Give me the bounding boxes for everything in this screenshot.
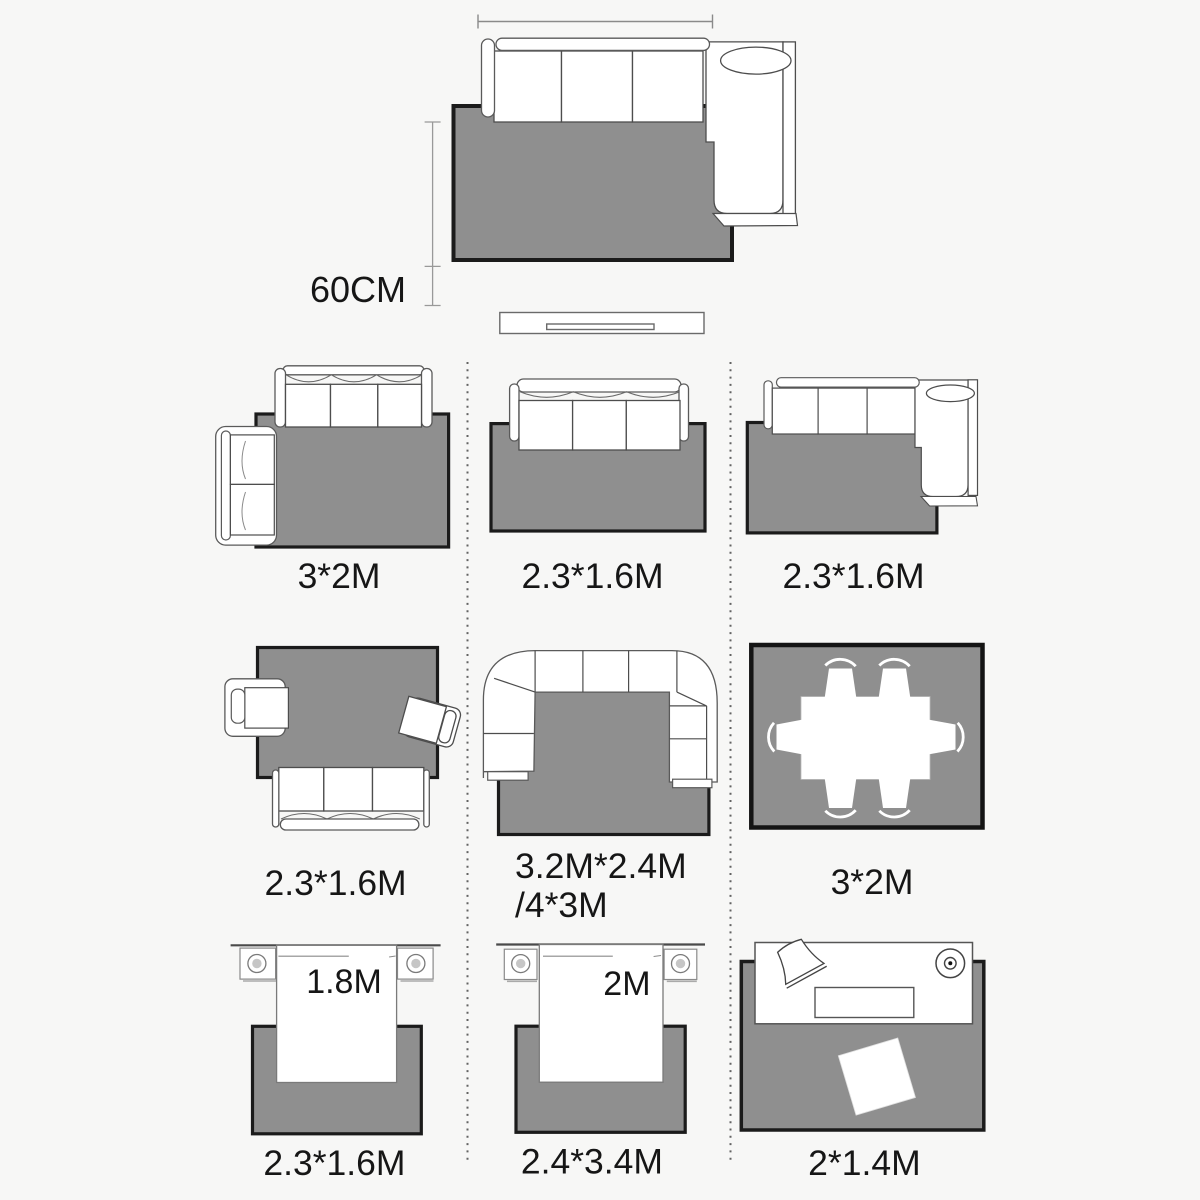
svg-text:2.4*3.4M: 2.4*3.4M — [521, 1142, 663, 1182]
svg-text:3*2M: 3*2M — [298, 556, 381, 596]
svg-text:60CM: 60CM — [310, 269, 406, 310]
svg-text:3.2M*2.4M: 3.2M*2.4M — [515, 846, 687, 886]
svg-text:2.3*1.6M: 2.3*1.6M — [265, 863, 407, 903]
svg-text:3*2M: 3*2M — [831, 862, 914, 902]
svg-text:2.3*1.6M: 2.3*1.6M — [782, 556, 924, 596]
svg-text:/4*3M: /4*3M — [515, 885, 608, 925]
svg-text:1.8M: 1.8M — [306, 963, 382, 1001]
svg-text:2M: 2M — [603, 965, 650, 1003]
svg-text:2*1.4M: 2*1.4M — [808, 1143, 920, 1183]
svg-text:2.3*1.6M: 2.3*1.6M — [263, 1143, 405, 1183]
svg-text:2.3*1.6M: 2.3*1.6M — [521, 556, 663, 596]
